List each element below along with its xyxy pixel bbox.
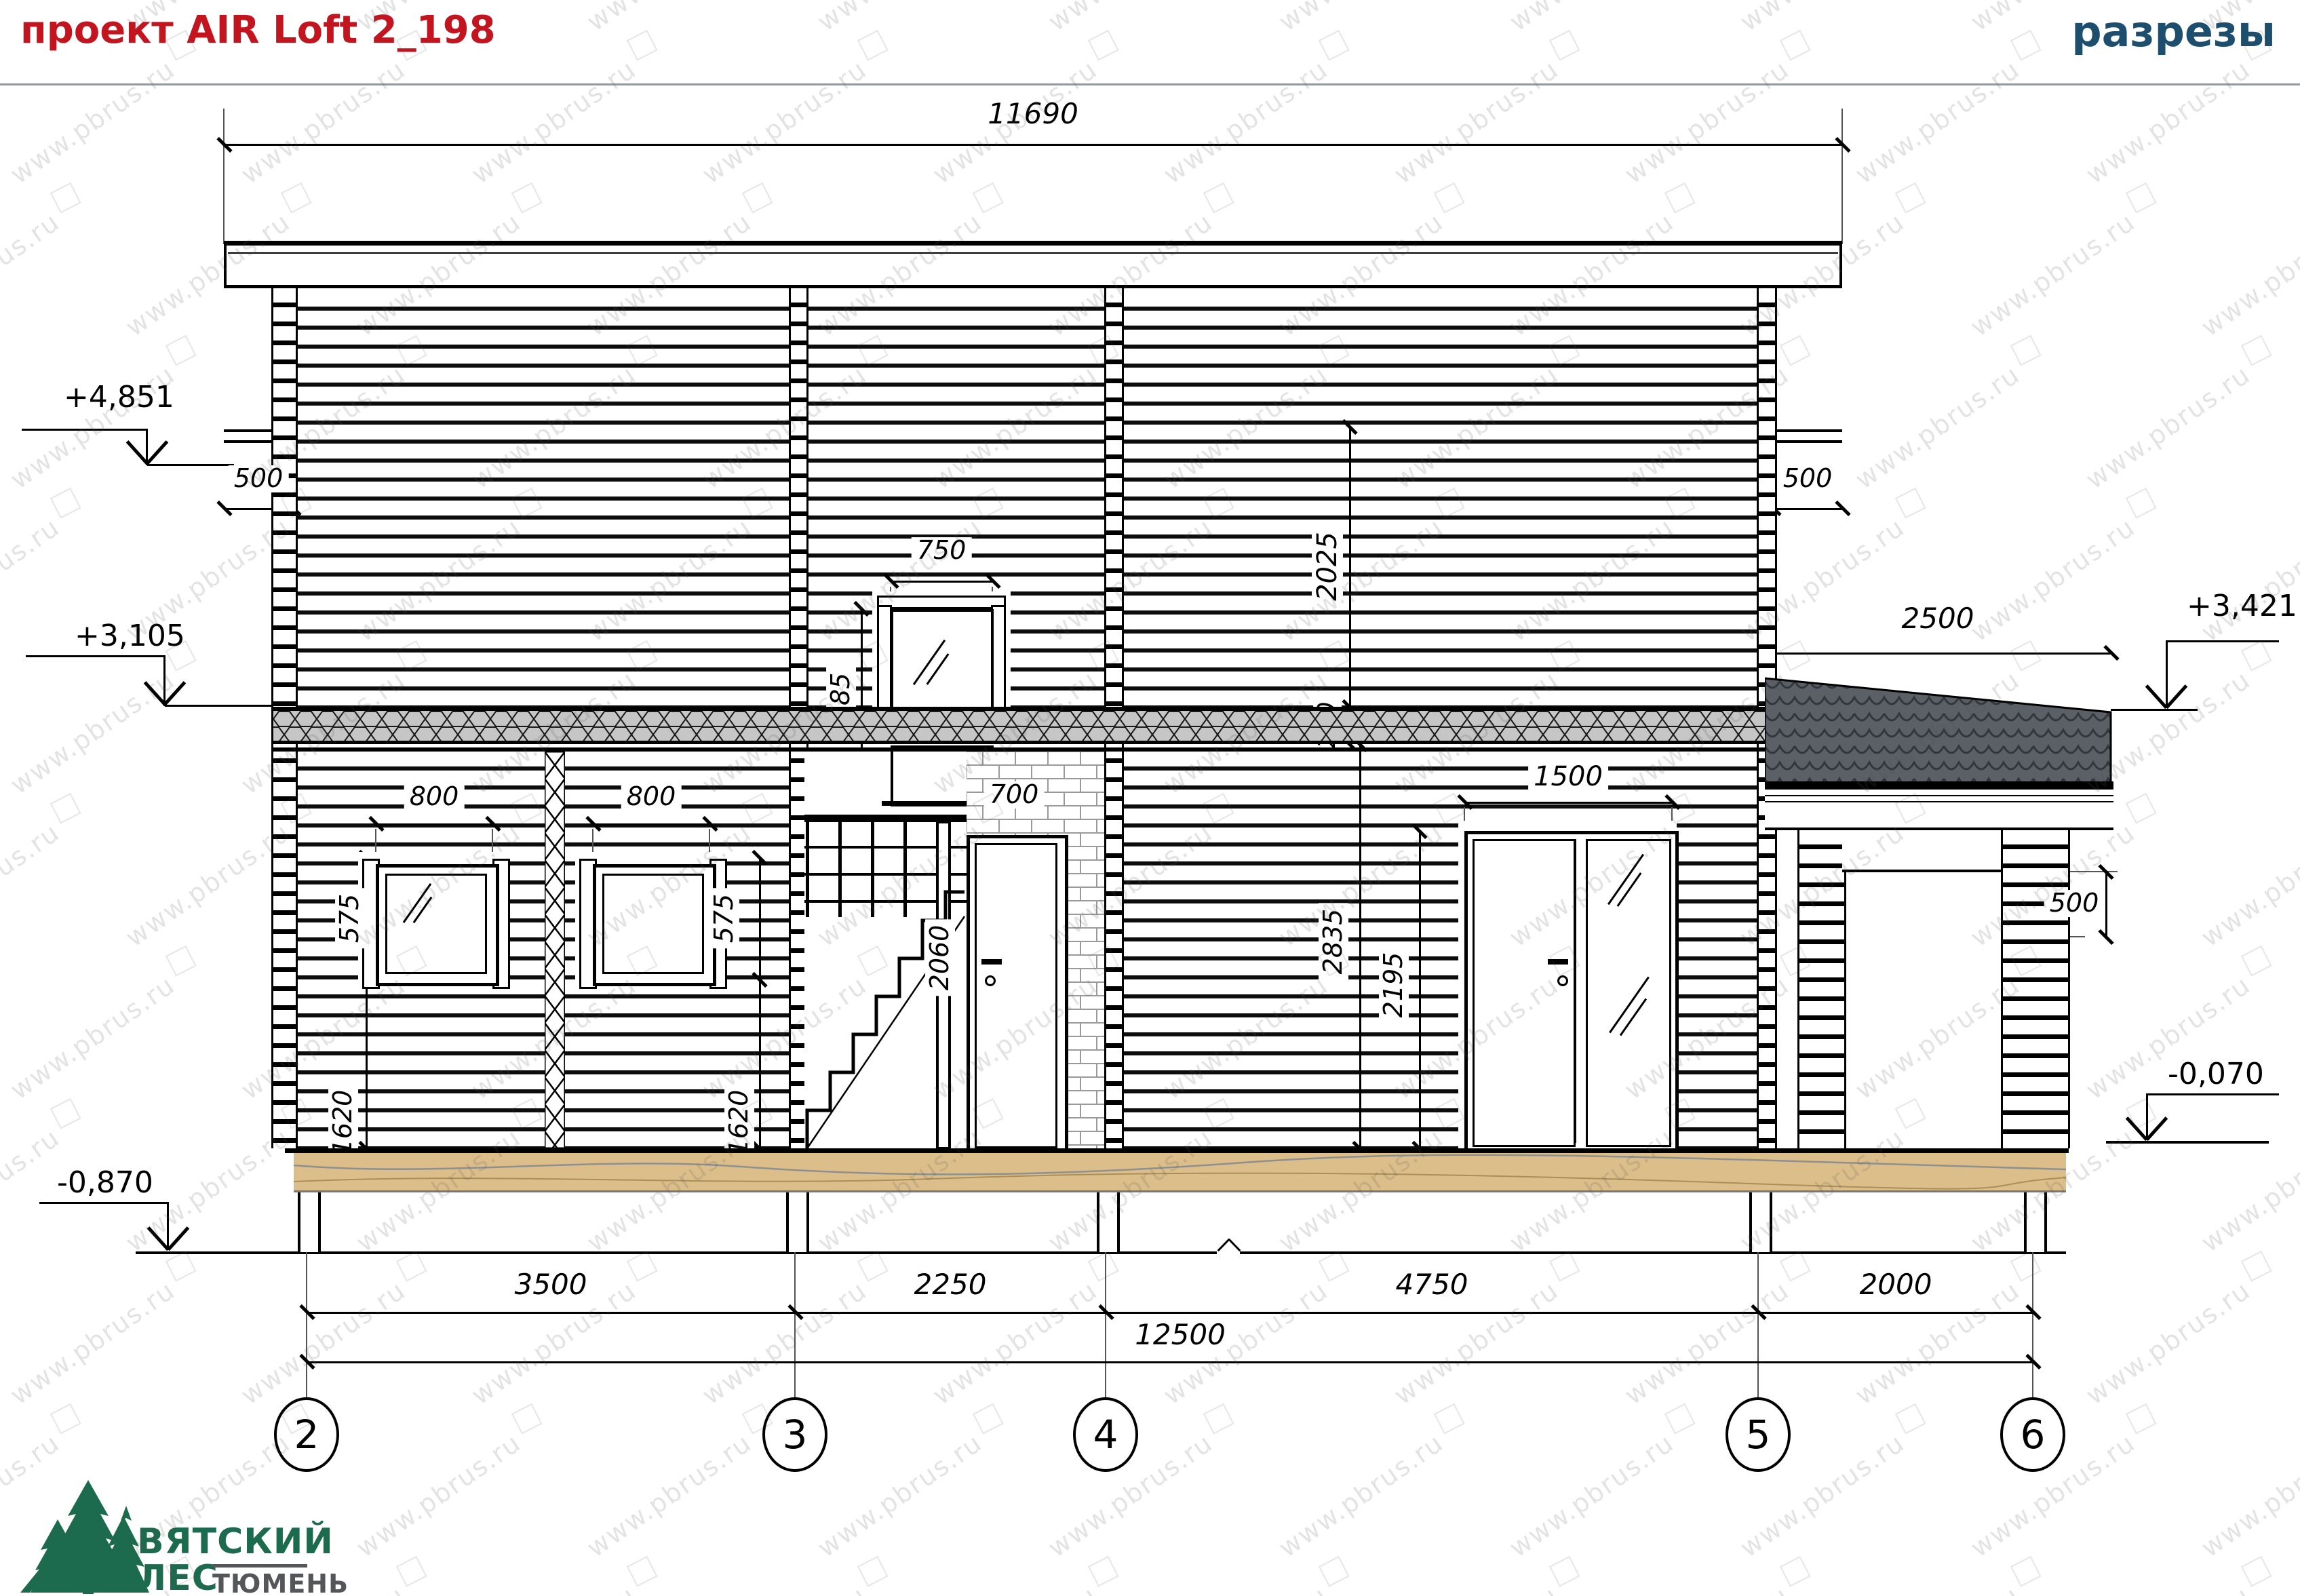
axis-label: 3 [783,1412,808,1458]
watermark-text: www.pbrus.ru [0,800,90,953]
elev-arrow [2145,1116,2168,1141]
logo-city: ТЮМЕНЬ [212,1571,349,1596]
dim-label-door1-height: 2060 [925,920,955,996]
dim-line [759,857,761,1148]
watermark-text: www.pbrus.ru [5,343,205,495]
axis-label: 5 [1746,1412,1771,1458]
watermark-text: www.pbrus.ru [697,1563,897,1596]
watermark-text: www.pbrus.ru [1158,37,1358,190]
watermark-text: www.pbrus.ru [1619,1563,1819,1596]
dim-line [1765,653,2111,655]
watermark-text: www.pbrus.ru [466,1563,666,1596]
dim-line [1349,427,1351,744]
dim-label-door1-width: 700 [984,781,1045,809]
dim-label-span-2-3: 3500 [509,1270,593,1300]
second-floor-siding [294,292,1773,707]
dim-line [376,823,492,825]
floor-top-line [285,1148,2069,1153]
elev-arrow [147,1226,170,1251]
elev-line [39,1202,168,1204]
elev-line [167,1202,169,1250]
logo-name-line2: ЛЕС [137,1561,218,1596]
dim-label-annex-roof-width: 2500 [1896,604,1980,634]
elev-arrow [163,681,186,705]
axis-label: 6 [2021,1412,2046,1458]
foundation-pile [298,1192,321,1252]
watermark-text: www.pbrus.ru [812,1411,1012,1563]
elev-line [2166,640,2168,708]
dim-label-window2-width: 800 [621,783,682,811]
watermark-text: www.pbrus.ru [1273,1411,1473,1563]
watermark-text: www.pbrus.ru [2080,343,2280,495]
watermark-text: www.pbrus.ru [1042,0,1243,37]
watermark-text: www.pbrus.ru [1965,495,2165,648]
watermark-text: www.pbrus.ru [1850,37,2050,190]
dim-line [1464,802,1672,804]
watermark-text: www.pbrus.ru [1619,37,1819,190]
watermark-text: www.pbrus.ru [581,1411,781,1563]
elev-arrow [144,681,166,705]
dim-label-door2-height: 2195 [1379,947,1409,1024]
watermark-text: www.pbrus.ru [1504,1411,1704,1563]
dim-label-door2-opening-height: 2835 [1319,903,1348,980]
dim-label-right-overhang: 500 [1778,465,1838,492]
elev-line [2166,640,2279,642]
main-roof-band [224,241,1842,288]
watermark-text: www.pbrus.ru [2080,1563,2280,1596]
dim-line [891,581,992,583]
logo-rule [212,1564,307,1568]
dim-line [1773,508,1842,510]
watermark-text: www.pbrus.ru [1504,0,1704,37]
elev-line [163,655,165,706]
dim-label-window1-width: 800 [404,783,465,811]
dim-label-annex-eave-drop: 500 [2044,890,2105,917]
dim-line-row2 [307,1361,2033,1363]
elev-arrow [2145,684,2168,709]
dim-label-floor2-height: 2025 [1312,526,1343,606]
interior-wall-hatch [545,752,565,1148]
watermark-text: www.pbrus.ru [5,953,205,1106]
dim-label-span-3-4: 2250 [909,1270,992,1300]
dim-line [1359,744,1361,1148]
elev-arrow [167,1226,189,1251]
elev-line [147,464,234,466]
door1-keyhole [985,975,996,986]
dim-line-top [224,144,1842,146]
elev-roof-top: +4,851 [61,380,177,414]
elev-arrow [2126,1116,2148,1141]
dim-label-window1-height: 575 [335,889,365,949]
watermark-text: www.pbrus.ru [0,190,90,343]
dim-line [2105,872,2107,937]
stair-window-lintel [877,596,1006,609]
elev-line [22,429,147,431]
watermark-text: www.pbrus.ru [2196,495,2300,648]
foundation-pile [1097,1192,1120,1252]
header-divider [0,83,2300,85]
foundation-pile [1749,1192,1772,1252]
foundation-pile [2024,1192,2047,1252]
watermark-text: www.pbrus.ru [2196,190,2300,343]
dim-label-total-width: 11690 [982,99,1084,129]
watermark-text: www.pbrus.ru [235,37,435,190]
dim-label-stair-window-width: 750 [912,537,972,564]
watermark-text: www.pbrus.ru [2196,1106,2300,1258]
dim-label-door2-width: 1500 [1528,762,1608,791]
annex-pillar-right [2001,830,2070,1148]
watermark-text: www.pbrus.ru [235,1258,435,1411]
sheet-name: разрезы [2071,7,2276,56]
elev-arrow [146,440,168,465]
dim-label-span-4-5: 4750 [1390,1270,1474,1300]
axis-bubble-2: 2 [274,1397,339,1472]
door2-leaf [1473,839,1576,1147]
axis-bubble-6: 6 [2000,1397,2065,1472]
annex-opening-header [1842,830,2001,872]
door1-handle [981,959,1002,965]
watermark-text: www.pbrus.ru [2196,1411,2300,1563]
elev-arrow [2165,684,2187,709]
axis-bubble-5: 5 [1726,1397,1791,1472]
watermark-text: www.pbrus.ru [1850,1563,2050,1596]
extension-line [1841,109,1843,244]
dim-line-row1 [307,1312,2033,1314]
foundation-pile [786,1192,809,1252]
annex-fascia-line [1765,801,2113,802]
drawing-canvas: проект AIR Loft 2_198 разрезы 11690 500 … [0,0,2300,1596]
watermark-text: www.pbrus.ru [1388,1563,1588,1596]
slab-bottom-line [273,741,1773,744]
door1-leaf [975,843,1057,1148]
dim-line [1419,831,1421,1148]
watermark-text: www.pbrus.ru [927,1563,1127,1596]
slab-hatch [273,711,1773,741]
watermark-text: www.pbrus.ru [697,37,897,190]
elev-line [2146,1093,2148,1140]
annex-pillar-left [1797,830,1846,1148]
logo-name-line1: ВЯТСКИЙ [137,1524,334,1559]
watermark-text: www.pbrus.ru [5,648,205,800]
watermark-text: www.pbrus.ru [5,1258,205,1411]
yard-line-right [2106,1141,2269,1144]
elev-annex-roof: +3,421 [2184,589,2300,623]
window1-inner-frame [385,874,487,974]
watermark-text: www.pbrus.ru [1734,0,1934,37]
page-title: проект AIR Loft 2_198 [20,8,496,52]
axis-label: 4 [1093,1412,1118,1458]
elev-arrow [126,440,149,465]
elev-line [26,655,165,657]
eave-beam-right [1773,429,1842,443]
watermark-text: www.pbrus.ru [1388,37,1588,190]
annex-eave-bar [1765,781,2113,790]
stair-window-trim-left [877,605,892,711]
door2-handle [1548,959,1568,965]
dim-label-total-span: 12500 [1129,1320,1231,1350]
watermark-text: www.pbrus.ru [2196,800,2300,953]
annex-fascia-line [1765,795,2113,796]
dim-label-left-overhang: 500 [229,465,289,492]
watermark-text: www.pbrus.ru [1850,343,2050,495]
dim-line [593,823,709,825]
extension-line [223,109,225,244]
watermark-text: www.pbrus.ru [1158,1563,1358,1596]
axis-bubble-3: 3 [762,1397,827,1472]
watermark-text: www.pbrus.ru [581,0,781,37]
elev-line [2146,1093,2279,1095]
axis-label: 2 [294,1412,319,1458]
elev-ground: -0,870 [54,1165,156,1200]
watermark-text: www.pbrus.ru [5,37,205,190]
watermark-text: www.pbrus.ru [1965,190,2165,343]
dim-label-window2-height: 575 [709,889,739,949]
elev-floor2: +3,105 [72,619,188,653]
watermark-text: www.pbrus.ru [697,1258,897,1411]
dim-label-span-5-6: 2000 [1854,1270,1938,1300]
watermark-text: www.pbrus.ru [812,0,1012,37]
floor-joist-band [294,1153,2066,1192]
door2-sidelight [1586,839,1671,1147]
watermark-text: www.pbrus.ru [1619,1258,1819,1411]
axis-bubble-4: 4 [1073,1397,1138,1472]
watermark-text: www.pbrus.ru [2080,37,2280,190]
watermark-text: www.pbrus.ru [2080,1258,2280,1411]
extension-line [2066,871,2118,872]
elev-line [2111,709,2198,711]
annex-roof-tiles [1765,677,2113,784]
door2-keyhole [1557,975,1568,986]
window2-inner-frame [602,874,704,974]
watermark-text: www.pbrus.ru [466,37,666,190]
elev-annex-floor: -0,070 [2165,1057,2267,1091]
watermark-text: www.pbrus.ru [1273,0,1473,37]
roof-inner-line [228,252,1838,254]
